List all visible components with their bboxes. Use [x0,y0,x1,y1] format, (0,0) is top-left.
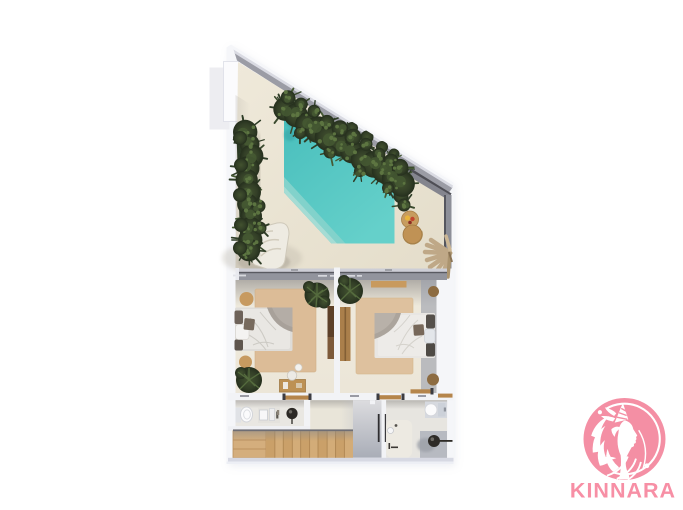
svg-text:KINNARA: KINNARA [570,479,676,503]
